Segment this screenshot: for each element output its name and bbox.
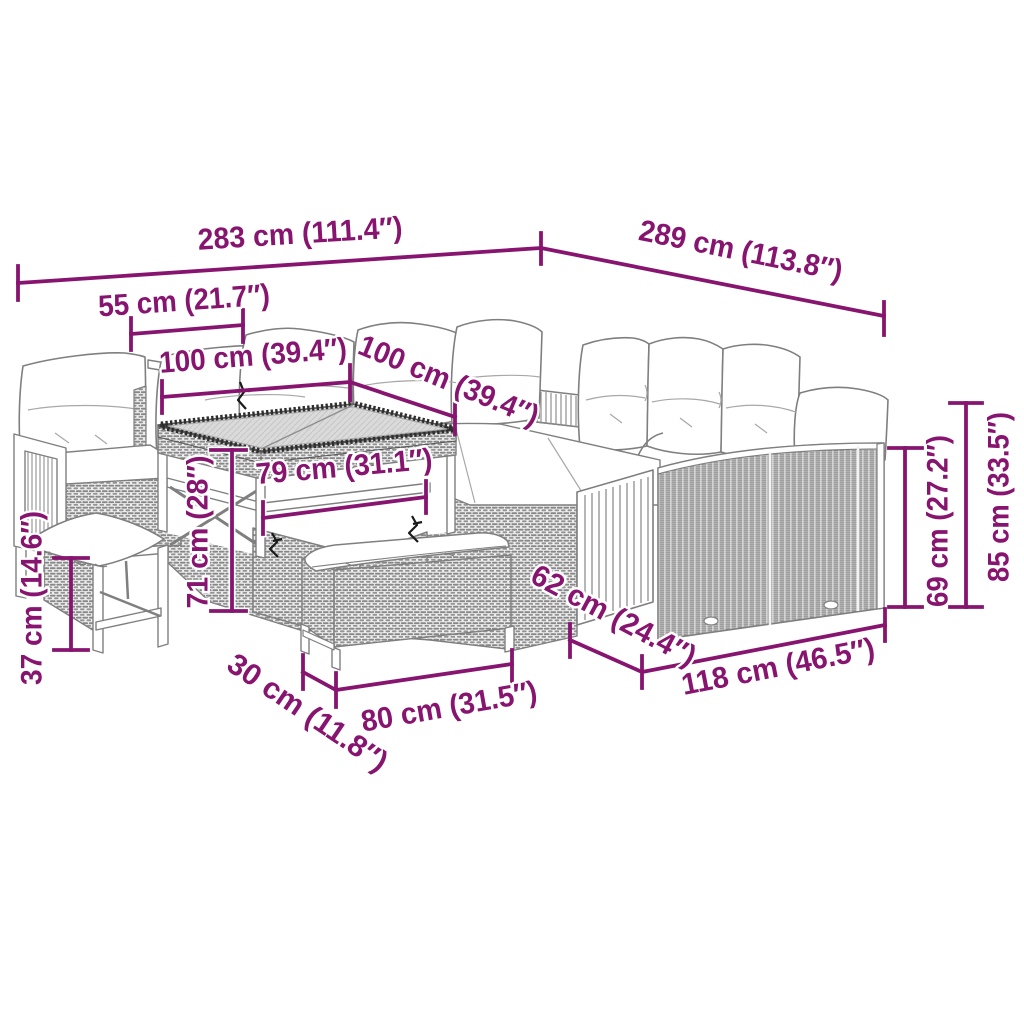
- svg-text:71 cm (28″): 71 cm (28″): [182, 456, 215, 609]
- svg-text:85 cm (33.5″): 85 cm (33.5″): [983, 412, 1016, 582]
- svg-text:69 cm (27.2″): 69 cm (27.2″): [922, 435, 955, 607]
- svg-text:37 cm (14.6″): 37 cm (14.6″): [16, 511, 49, 685]
